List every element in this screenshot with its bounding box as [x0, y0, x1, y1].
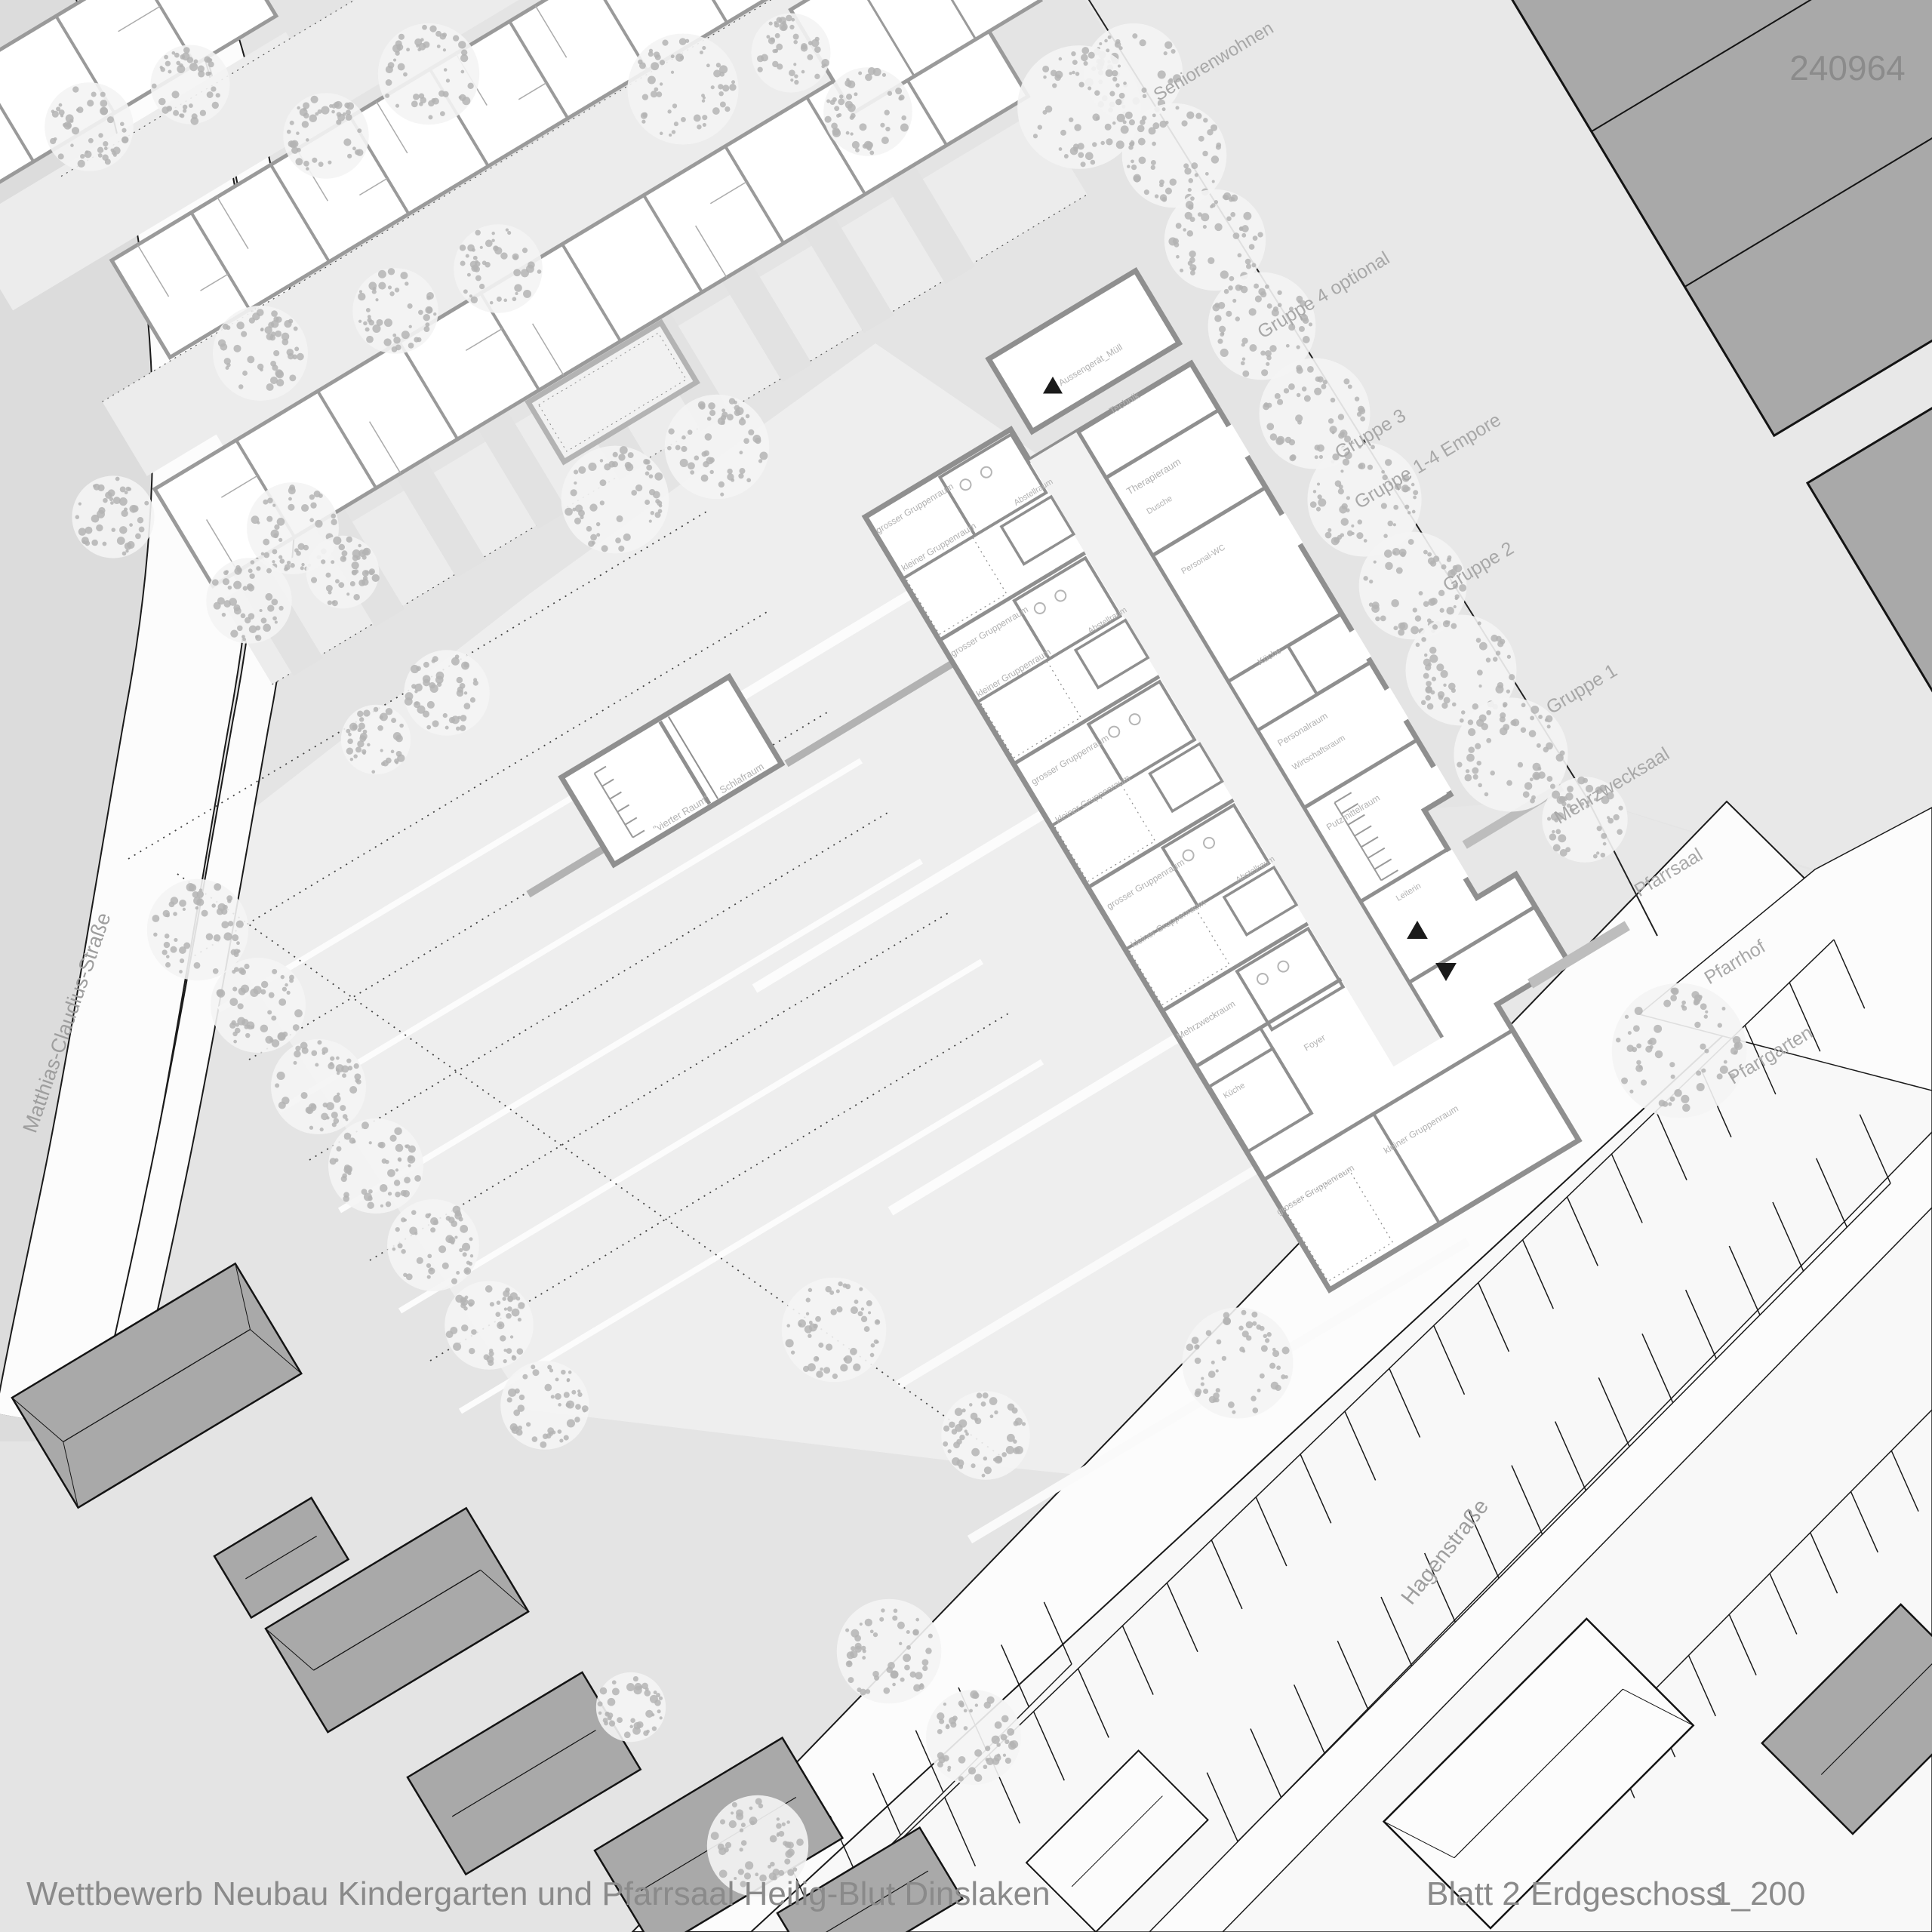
tree-speckle — [277, 518, 285, 526]
tree-speckle — [469, 294, 472, 297]
tree-speckle — [609, 1721, 615, 1727]
tree-speckle — [1466, 754, 1475, 762]
tree-speckle — [207, 91, 214, 98]
tree-speckle — [1476, 638, 1481, 643]
tree-speckle — [353, 754, 358, 758]
tree-speckle — [992, 1736, 1000, 1744]
tree-speckle — [823, 1367, 830, 1374]
tree-speckle — [426, 292, 434, 300]
tree-speckle — [648, 76, 656, 85]
tree-speckle — [408, 1164, 411, 1167]
tree-speckle — [214, 602, 221, 610]
tree-speckle — [1238, 253, 1242, 257]
tree-speckle — [291, 140, 299, 148]
tree-speckle — [244, 964, 249, 969]
tree-speckle — [874, 1340, 878, 1344]
tree-speckle — [1421, 700, 1426, 705]
tree-speckle — [958, 1756, 966, 1764]
tree-speckle — [472, 248, 475, 252]
tree-speckle — [1203, 225, 1207, 229]
tree-speckle — [272, 969, 277, 974]
tree-speckle — [738, 1869, 744, 1875]
tree-speckle — [567, 1419, 575, 1427]
tree-speckle — [1108, 35, 1112, 39]
tree-speckle — [1195, 173, 1198, 177]
tree-speckle — [861, 1316, 867, 1322]
tree-speckle — [431, 98, 435, 103]
tree-speckle — [350, 758, 353, 761]
tree-speckle — [832, 1374, 838, 1379]
tree-speckle — [165, 61, 171, 66]
tree-speckle — [413, 94, 420, 100]
tree-speckle — [899, 1642, 902, 1645]
tree-speckle — [312, 158, 317, 163]
tree-speckle — [1331, 398, 1336, 403]
tree-speckle — [82, 540, 86, 544]
tree-speckle — [162, 949, 168, 955]
tree-speckle — [1094, 91, 1100, 96]
tree-speckle — [884, 109, 890, 115]
tree-speckle — [577, 1392, 582, 1397]
tree-speckle — [418, 310, 423, 315]
tree-speckle — [772, 61, 778, 67]
tree-speckle — [1385, 562, 1393, 571]
tree-speckle — [335, 579, 340, 583]
tree-speckle — [600, 459, 603, 462]
tree-speckle — [297, 353, 304, 361]
tree-speckle — [1257, 232, 1263, 237]
tree-speckle — [399, 724, 404, 728]
tree-speckle — [127, 541, 134, 549]
tree-speckle — [870, 1629, 874, 1633]
tree-speckle — [667, 446, 672, 451]
tree-speckle — [507, 1296, 513, 1302]
tree-speckle — [1194, 1344, 1199, 1349]
tree-speckle — [1185, 212, 1192, 220]
tree-speckle — [112, 146, 120, 154]
tree-speckle — [1671, 988, 1677, 994]
tree-speckle — [1112, 70, 1118, 76]
tree-speckle — [433, 312, 436, 315]
tree-speckle — [559, 1438, 563, 1442]
tree-speckle — [229, 998, 238, 1006]
tree-speckle — [340, 1105, 346, 1111]
tree-icon — [1183, 1308, 1294, 1419]
tree-speckle — [260, 609, 263, 612]
tree-speckle — [745, 1861, 753, 1869]
tree-icon — [271, 1039, 366, 1134]
tree-speckle — [617, 515, 623, 522]
tree-speckle — [806, 1297, 811, 1302]
tree-speckle — [844, 80, 851, 87]
tree-speckle — [490, 301, 494, 305]
tree-speckle — [718, 417, 725, 425]
tree-speckle — [807, 54, 813, 60]
tree-speckle — [326, 585, 333, 592]
tree-speckle — [711, 1832, 719, 1840]
tree-speckle — [1266, 423, 1274, 430]
tree-icon — [445, 1281, 534, 1370]
tree-speckle — [555, 1377, 559, 1381]
tree-speckle — [512, 1309, 520, 1317]
tree-speckle — [1461, 710, 1466, 715]
tree-speckle — [1432, 677, 1436, 681]
tree-speckle — [334, 101, 343, 109]
tree-speckle — [551, 1395, 555, 1398]
tree-speckle — [75, 515, 79, 518]
tree-speckle — [1249, 308, 1257, 315]
tree-speckle — [1064, 154, 1069, 158]
tree-speckle — [748, 429, 754, 435]
tree-speckle — [97, 485, 104, 491]
tree-speckle — [238, 384, 243, 389]
competition-number: 240964 — [1789, 48, 1906, 88]
tree-speckle — [1033, 134, 1038, 138]
tree-speckle — [1164, 42, 1172, 49]
tree-speckle — [649, 474, 654, 478]
tree-speckle — [295, 1046, 300, 1051]
tree-speckle — [532, 1436, 538, 1442]
tree-speckle — [288, 318, 293, 323]
tree-speckle — [1374, 561, 1377, 564]
tree-speckle — [311, 577, 317, 583]
tree-speckle — [463, 1252, 467, 1257]
tree-speckle — [561, 1370, 566, 1375]
tree-speckle — [272, 560, 275, 563]
tree-speckle — [231, 949, 237, 955]
tree-speckle — [1201, 1377, 1204, 1380]
tree-speckle — [249, 626, 257, 634]
tree-speckle — [1704, 1014, 1708, 1018]
tree-speckle — [260, 328, 263, 331]
tree-speckle — [1555, 829, 1561, 835]
tree-speckle — [110, 501, 114, 505]
tree-speckle — [783, 1841, 788, 1846]
tree-speckle — [669, 428, 675, 434]
tree-speckle — [404, 1219, 407, 1222]
tree-speckle — [255, 626, 260, 631]
tree-speckle — [389, 291, 394, 296]
tree-speckle — [395, 40, 402, 47]
tree-speckle — [588, 463, 596, 471]
tree-speckle — [1478, 783, 1482, 788]
tree-speckle — [1694, 998, 1700, 1005]
tree-speckle — [211, 86, 216, 91]
tree-speckle — [326, 573, 331, 578]
tree-speckle — [1607, 818, 1614, 824]
tree-speckle — [473, 678, 477, 681]
tree-speckle — [895, 88, 902, 94]
tree-speckle — [311, 96, 318, 103]
tree-speckle — [296, 131, 300, 135]
tree-speckle — [1288, 383, 1295, 390]
tree-speckle — [1162, 107, 1166, 111]
tree-speckle — [408, 1155, 416, 1164]
tree-speckle — [403, 1273, 407, 1277]
tree-speckle — [1497, 682, 1503, 688]
tree-speckle — [613, 452, 618, 457]
tree-speckle — [445, 726, 449, 730]
tree-icon — [454, 224, 543, 313]
tree-speckle — [372, 290, 377, 294]
tree-speckle — [334, 1118, 340, 1124]
tree-speckle — [294, 1051, 300, 1057]
tree-speckle — [1013, 1447, 1020, 1454]
tree-speckle — [278, 1102, 286, 1109]
tree-speckle — [1454, 605, 1457, 608]
tree-icon — [926, 1690, 1021, 1785]
tree-speckle — [1081, 47, 1089, 54]
tree-speckle — [135, 534, 141, 540]
tree-speckle — [318, 109, 322, 114]
tree-speckle — [251, 560, 255, 565]
tree-speckle — [645, 472, 650, 476]
tree-speckle — [1396, 568, 1403, 574]
tree-speckle — [671, 71, 674, 74]
tree-speckle — [1207, 257, 1214, 264]
tree-speckle — [454, 1235, 457, 1238]
tree-speckle — [784, 1859, 790, 1865]
tree-speckle — [983, 1764, 988, 1769]
tree-speckle — [249, 574, 254, 579]
tree-speckle — [958, 1420, 967, 1428]
tree-speckle — [287, 130, 291, 134]
tree-speckle — [436, 672, 445, 680]
tree-speckle — [582, 1405, 589, 1412]
tree-speckle — [515, 1389, 520, 1394]
tree-speckle — [343, 557, 346, 560]
tree-speckle — [1267, 1332, 1272, 1337]
tree-speckle — [423, 679, 430, 687]
tree-halo — [378, 23, 479, 125]
tree-speckle — [1242, 357, 1245, 360]
tree-speckle — [1190, 196, 1195, 201]
tree-speckle — [1219, 326, 1226, 333]
tree-speckle — [411, 100, 418, 107]
tree-speckle — [1152, 113, 1156, 117]
tree-speckle — [974, 1418, 978, 1422]
plan-graphics-layer: Aussengerät_MüllTechnikTherapieraumDusch… — [0, 0, 1932, 1932]
tree-speckle — [943, 1426, 949, 1432]
tree-speckle — [939, 1718, 944, 1724]
tree-speckle — [586, 526, 592, 532]
tree-speckle — [643, 459, 649, 465]
tree-speckle — [815, 37, 820, 42]
tree-speckle — [1270, 433, 1277, 440]
tree-speckle — [1369, 580, 1373, 583]
tree-speckle — [1704, 1049, 1709, 1054]
tree-speckle — [1238, 1326, 1243, 1331]
tree-speckle — [403, 72, 408, 77]
tree-speckle — [846, 1660, 853, 1667]
tree-speckle — [450, 1327, 457, 1334]
tree-speckle — [1358, 463, 1365, 469]
tree-speckle — [233, 581, 241, 589]
tree-speckle — [489, 1351, 494, 1356]
tree-speckle — [959, 1435, 964, 1440]
tree-speckle — [1674, 1089, 1681, 1097]
tree-speckle — [578, 509, 585, 516]
tree-speckle — [1384, 549, 1392, 558]
tree-speckle — [1530, 777, 1534, 781]
tree-speckle — [1241, 225, 1249, 232]
tree-speckle — [1191, 162, 1198, 169]
tree-speckle — [217, 989, 225, 998]
tree-speckle — [626, 1683, 635, 1691]
tree-speckle — [1072, 60, 1078, 65]
tree-speckle — [777, 1817, 780, 1820]
tree-speckle — [1491, 635, 1498, 642]
tree-speckle — [1008, 1742, 1016, 1749]
tree-speckle — [912, 1629, 919, 1635]
tree-speckle — [680, 459, 688, 467]
tree-speckle — [1546, 743, 1553, 750]
tree-speckle — [443, 713, 448, 718]
tree-speckle — [388, 285, 392, 289]
tree-speckle — [176, 61, 180, 66]
tree-speckle — [164, 942, 170, 948]
tree-speckle — [758, 459, 762, 463]
tree-halo — [72, 475, 154, 558]
tree-speckle — [236, 941, 240, 945]
tree-speckle — [240, 969, 246, 975]
tree-halo — [45, 82, 134, 171]
tree-speckle — [865, 1619, 872, 1626]
tree-speckle — [1464, 774, 1472, 782]
tree-icon — [752, 14, 831, 93]
tree-speckle — [1447, 620, 1451, 623]
tree-speckle — [180, 54, 186, 60]
tree-speckle — [731, 478, 734, 482]
tree-speckle — [301, 504, 309, 512]
tree-speckle — [1212, 180, 1215, 183]
tree-speckle — [1214, 200, 1218, 204]
tree-speckle — [1413, 608, 1417, 612]
tree-speckle — [257, 364, 263, 370]
tree-speckle — [223, 600, 231, 608]
tree-speckle — [972, 1692, 979, 1699]
tree-speckle — [1393, 505, 1398, 510]
tree-speckle — [388, 1192, 392, 1195]
tree-speckle — [1486, 738, 1491, 743]
tree-speckle — [1429, 647, 1436, 654]
tree-speckle — [1427, 618, 1432, 623]
tree-speckle — [868, 67, 875, 75]
tree-speckle — [886, 1666, 893, 1673]
tree-speckle — [1243, 212, 1251, 220]
tree-speckle — [355, 746, 361, 752]
tree-speckle — [367, 1201, 374, 1208]
tree-icon — [837, 1599, 942, 1704]
tree-speckle — [516, 1429, 523, 1436]
tree-speckle — [862, 1656, 866, 1660]
tree-speckle — [423, 42, 430, 48]
tree-speckle — [1078, 82, 1084, 87]
tree-speckle — [120, 487, 126, 493]
tree-speckle — [394, 1180, 400, 1186]
tree-speckle — [491, 232, 494, 235]
tree-speckle — [265, 593, 272, 601]
tree-speckle — [1202, 151, 1207, 156]
tree-speckle — [1524, 782, 1532, 789]
tree-speckle — [596, 533, 600, 537]
tree-speckle — [266, 516, 272, 522]
tree-speckle — [855, 1643, 862, 1650]
tree-speckle — [366, 336, 374, 343]
tree-speckle — [1503, 702, 1508, 707]
tree-speckle — [1001, 1715, 1009, 1723]
tree-speckle — [1220, 332, 1224, 337]
tree-speckle — [1717, 1073, 1723, 1079]
tree-speckle — [401, 1249, 405, 1254]
tree-speckle — [641, 120, 645, 124]
tree-speckle — [1190, 270, 1195, 275]
tree-speckle — [808, 1334, 811, 1337]
tree-speckle — [574, 481, 577, 485]
tree-speckle — [293, 1024, 300, 1031]
tree-speckle — [1523, 791, 1530, 798]
tree-icon — [404, 650, 489, 735]
tree-speckle — [314, 491, 321, 497]
tree-speckle — [794, 80, 798, 85]
tree-speckle — [697, 125, 701, 129]
tree-speckle — [660, 132, 663, 135]
tree-speckle — [166, 955, 170, 958]
tree-speckle — [463, 1306, 468, 1311]
tree-speckle — [922, 1666, 928, 1671]
tree-speckle — [879, 1617, 884, 1622]
tree-speckle — [700, 51, 703, 54]
tree-speckle — [1258, 288, 1266, 296]
tree-speckle — [1143, 94, 1147, 99]
tree-speckle — [1249, 244, 1255, 250]
tree-speckle — [1231, 195, 1238, 202]
tree-speckle — [854, 92, 857, 96]
tree-speckle — [268, 322, 274, 328]
tree-speckle — [493, 245, 499, 251]
tree-speckle — [1129, 119, 1135, 125]
tree-speckle — [898, 96, 903, 100]
tree-speckle — [484, 1354, 490, 1360]
tree-speckle — [459, 1217, 463, 1222]
tree-speckle — [1472, 768, 1478, 774]
tree-speckle — [1468, 728, 1475, 736]
tree-speckle — [1218, 302, 1226, 309]
tree-speckle — [234, 608, 241, 615]
tree-speckle — [558, 1403, 561, 1407]
tree-speckle — [248, 613, 255, 620]
tree-speckle — [510, 1335, 513, 1338]
tree-speckle — [443, 48, 446, 51]
tree-speckle — [1447, 555, 1452, 560]
tree-speckle — [337, 1093, 340, 1096]
tree-speckle — [372, 574, 380, 582]
tree-speckle — [858, 71, 862, 75]
tree-speckle — [845, 1629, 849, 1632]
tree-speckle — [196, 899, 204, 906]
tree-speckle — [740, 417, 744, 421]
tree-speckle — [1500, 716, 1506, 722]
tree-speckle — [1411, 626, 1419, 635]
tree-speckle — [346, 537, 352, 543]
tree-speckle — [453, 35, 459, 41]
tree-speckle — [213, 968, 219, 974]
tree-speckle — [1224, 289, 1229, 294]
tree-speckle — [736, 407, 744, 415]
tree-speckle — [603, 1718, 608, 1723]
tree-speckle — [59, 109, 65, 115]
tree-speckle — [851, 1306, 858, 1314]
